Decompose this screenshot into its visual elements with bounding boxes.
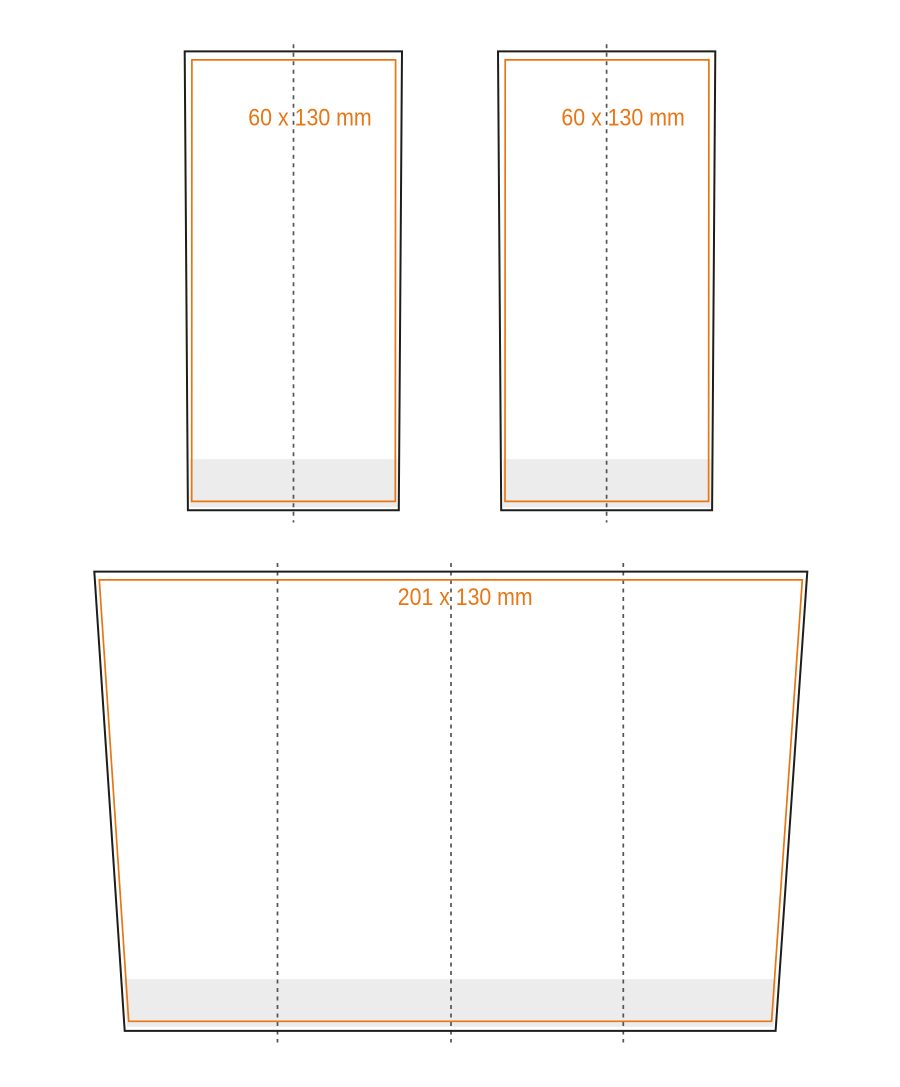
svg-text:60 x 130 mm: 60 x 130 mm xyxy=(561,106,684,132)
svg-text:60 x 130 mm: 60 x 130 mm xyxy=(248,106,371,132)
svg-text:201 x 130 mm: 201 x 130 mm xyxy=(398,585,533,611)
